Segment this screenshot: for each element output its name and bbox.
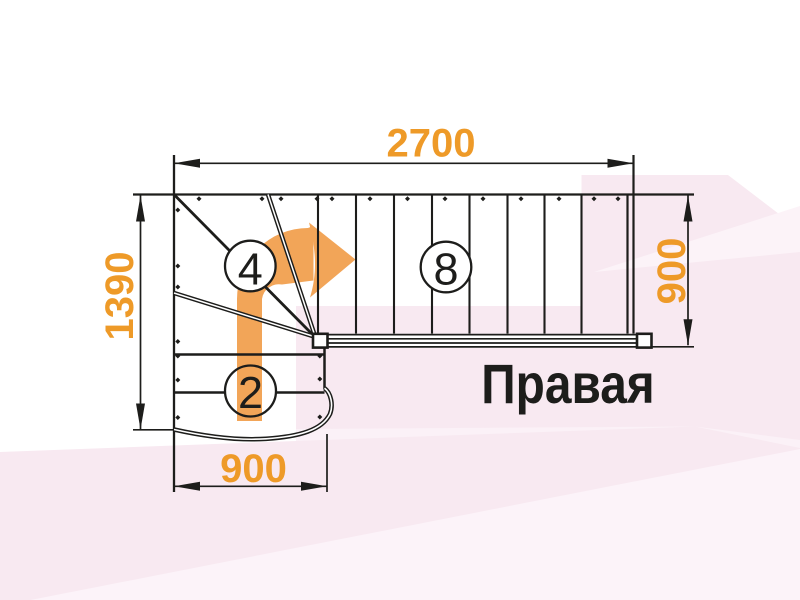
- svg-text:2: 2: [238, 367, 263, 418]
- svg-text:900: 900: [220, 447, 287, 491]
- svg-text:900: 900: [650, 238, 694, 305]
- svg-text:Правая: Правая: [481, 354, 654, 416]
- svg-text:2700: 2700: [387, 121, 476, 165]
- svg-text:1390: 1390: [98, 252, 142, 341]
- svg-text:8: 8: [433, 243, 458, 294]
- svg-text:4: 4: [238, 243, 263, 294]
